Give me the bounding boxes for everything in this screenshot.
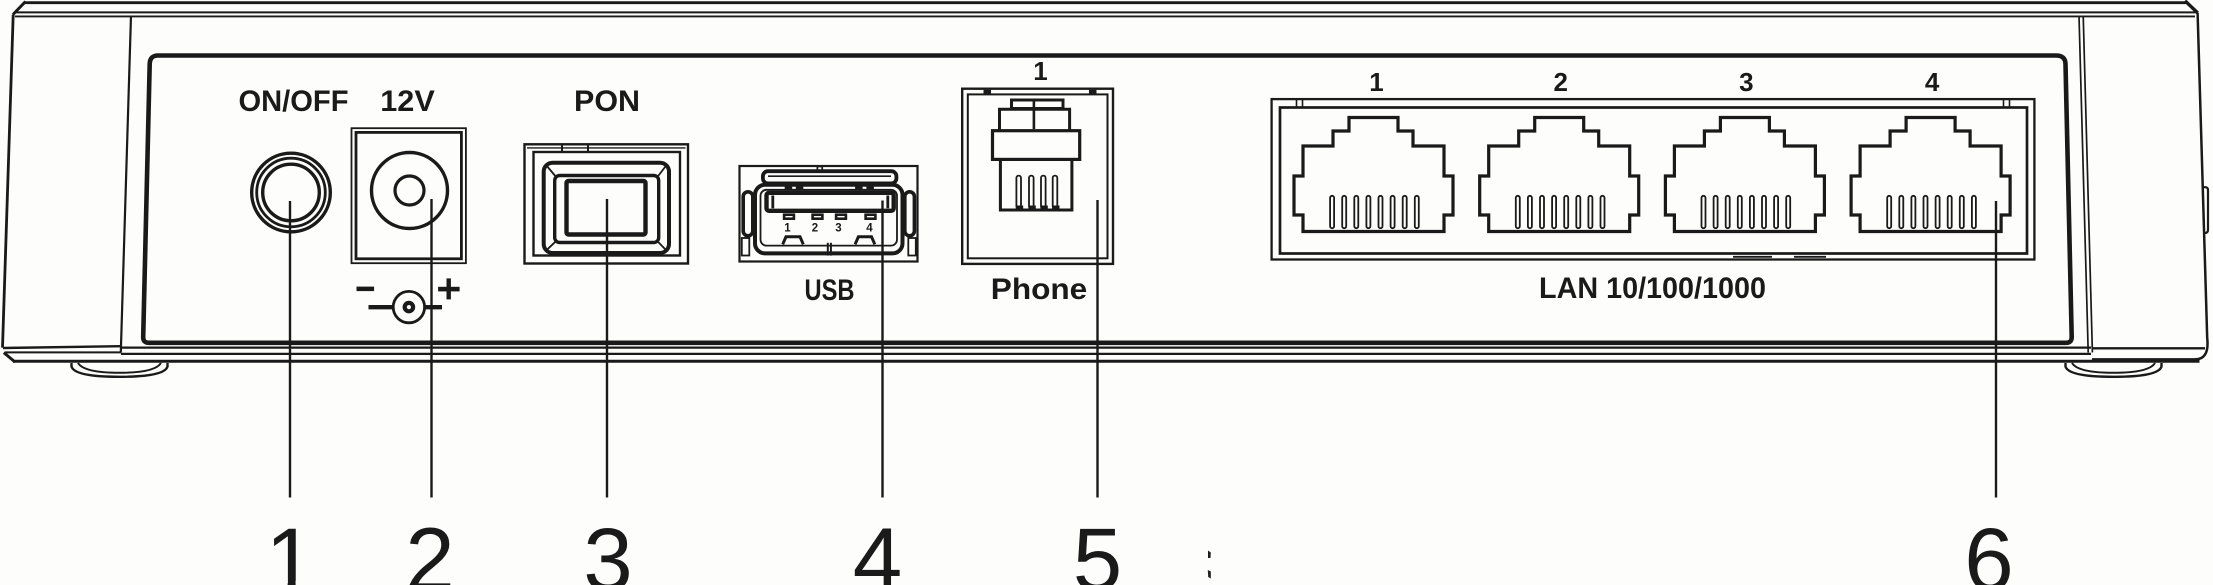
svg-text:1: 1: [1369, 67, 1383, 97]
svg-text:4: 4: [866, 223, 873, 235]
svg-text:PON: PON: [574, 85, 640, 118]
svg-text:12V: 12V: [380, 85, 435, 118]
svg-text:1: 1: [1033, 56, 1047, 86]
svg-text:3: 3: [835, 223, 841, 235]
svg-text:2: 2: [405, 509, 455, 585]
svg-text:USB: USB: [805, 274, 855, 307]
svg-text:4: 4: [1925, 67, 1940, 97]
svg-text:Phone: Phone: [991, 273, 1088, 306]
svg-text:1: 1: [266, 509, 316, 585]
svg-text:4: 4: [853, 509, 903, 585]
svg-text:2: 2: [812, 223, 818, 235]
svg-text:5: 5: [1073, 509, 1123, 585]
svg-text:2: 2: [1553, 67, 1567, 97]
svg-text:6: 6: [1964, 509, 2014, 585]
svg-text:3: 3: [1739, 67, 1753, 97]
svg-text:ON/OFF: ON/OFF: [239, 85, 349, 118]
svg-text:3: 3: [583, 509, 633, 585]
svg-text:1: 1: [784, 223, 791, 235]
svg-text:LAN 10/100/1000: LAN 10/100/1000: [1539, 272, 1766, 305]
